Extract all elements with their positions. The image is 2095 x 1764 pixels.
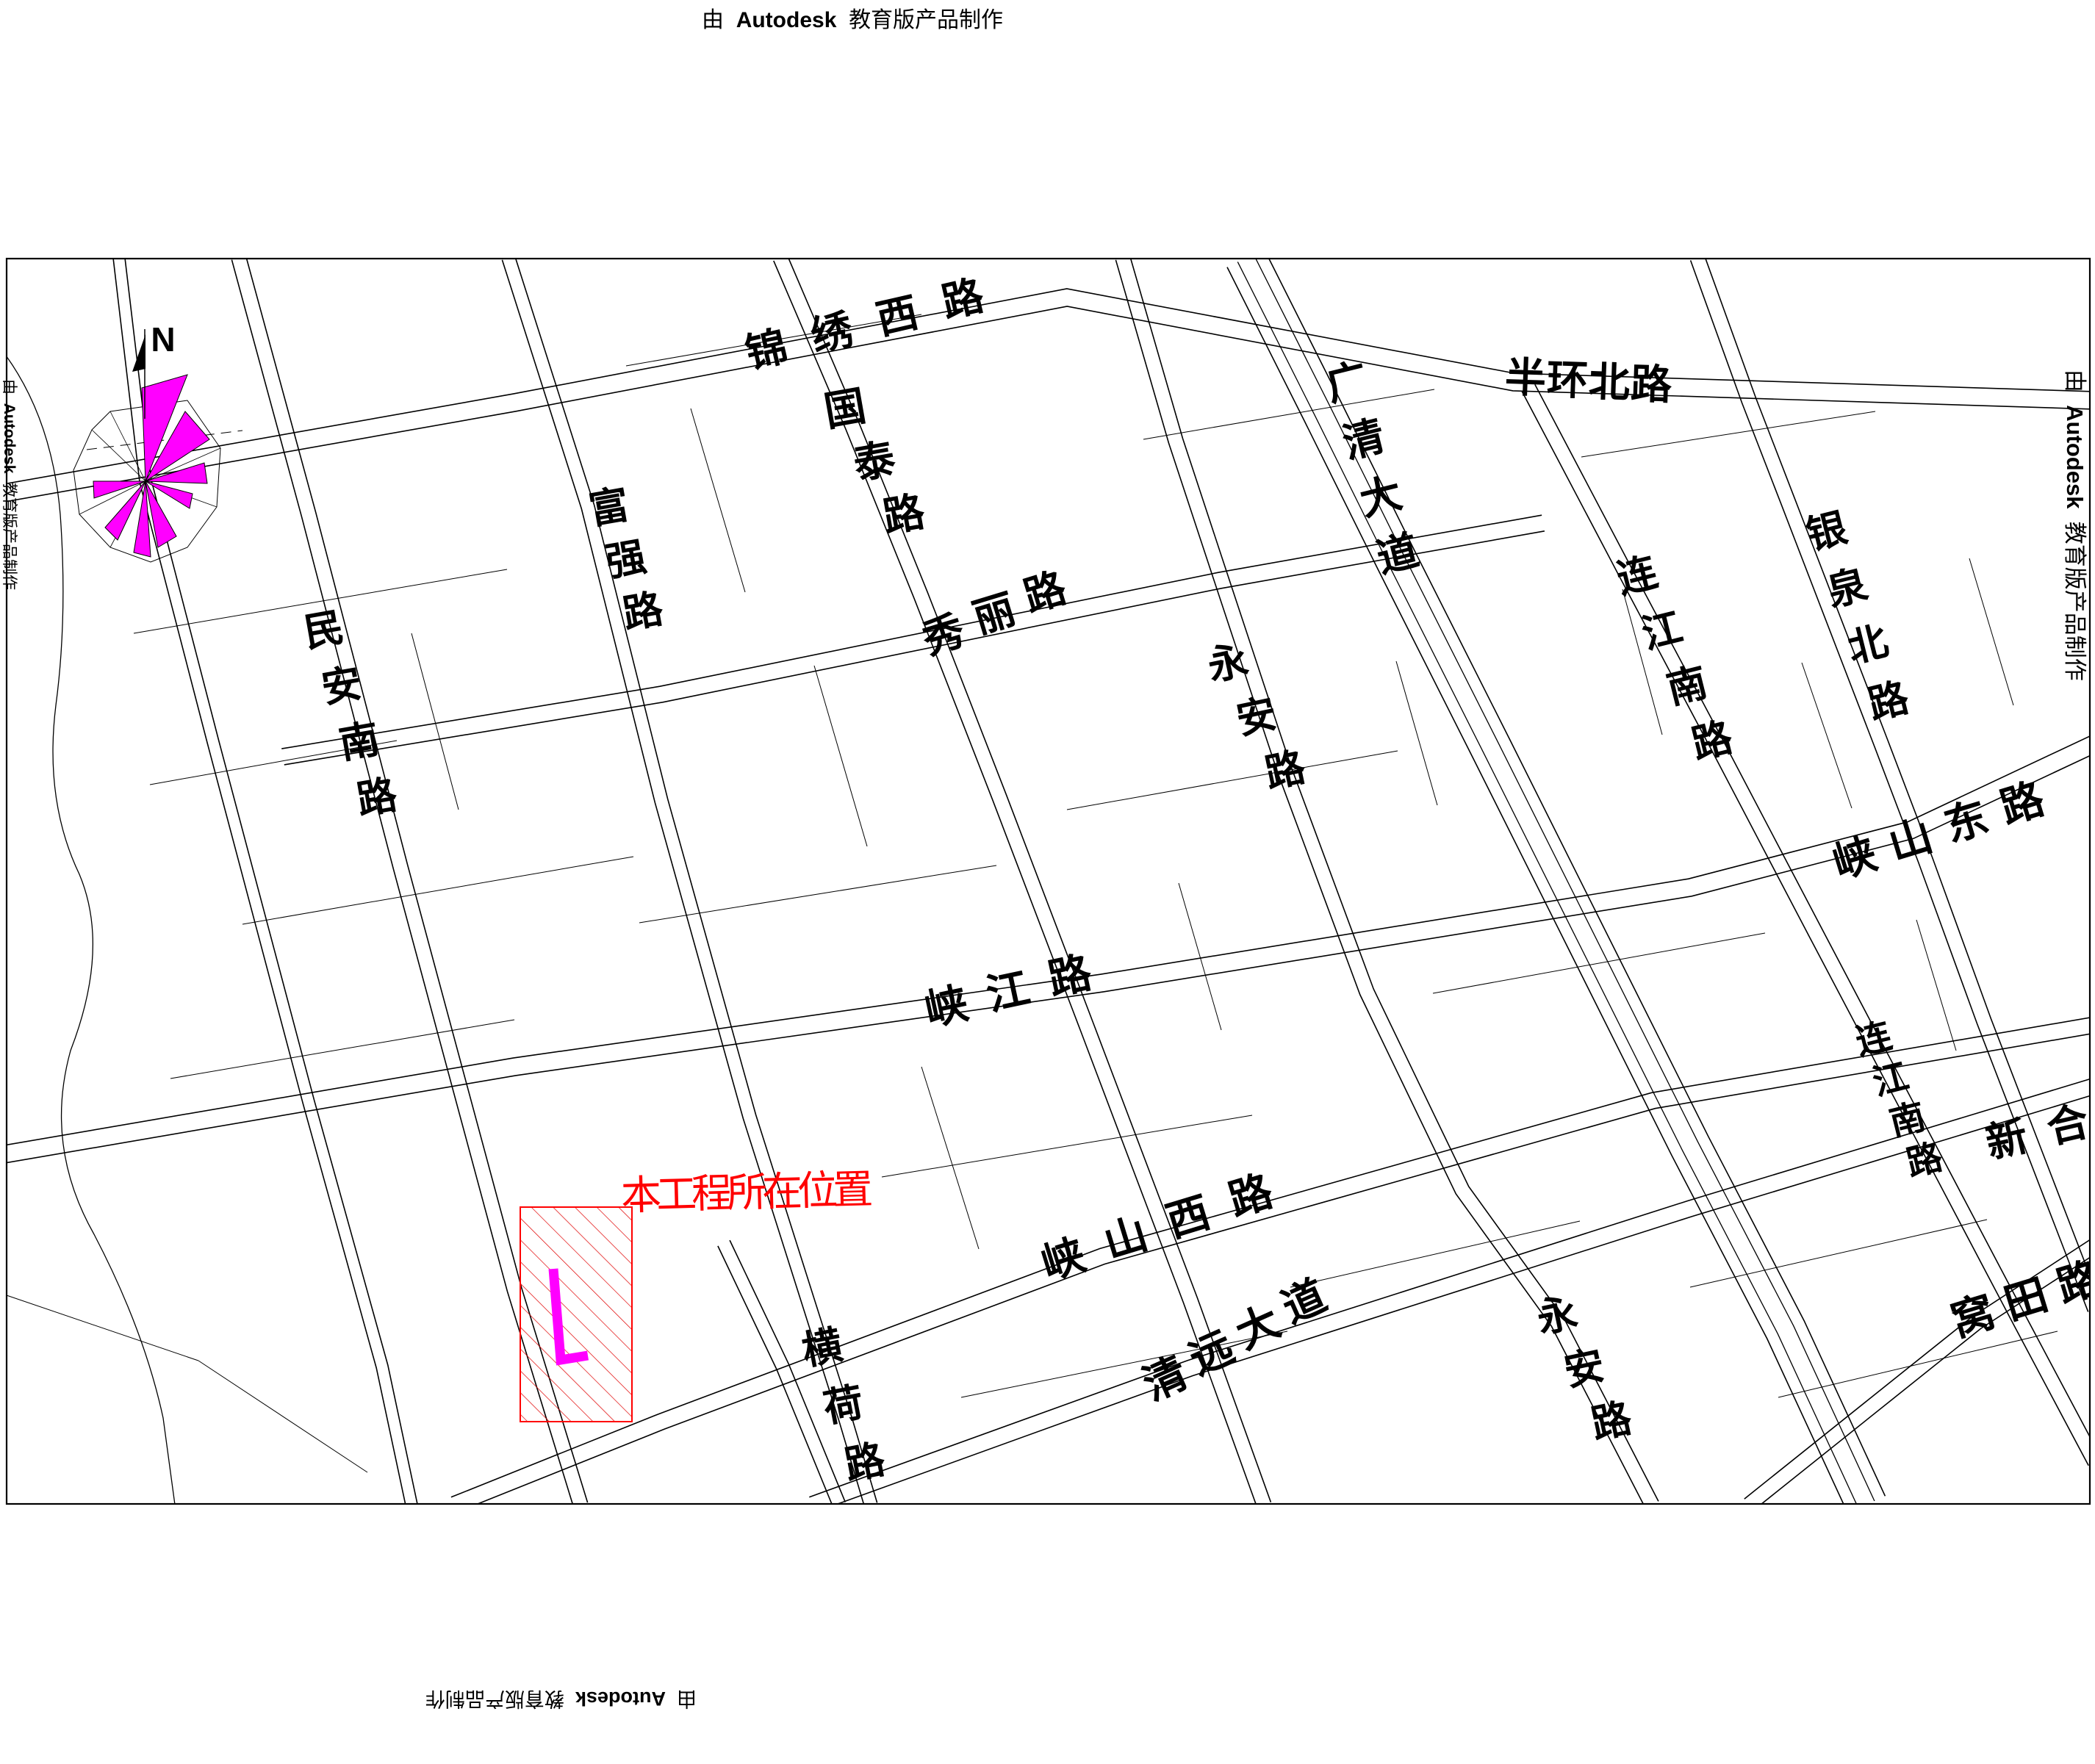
road-label-minan: 民安南路	[301, 605, 401, 823]
svg-text:新: 新	[1982, 1112, 2033, 1167]
road-label-yongan-s: 永安路	[1533, 1290, 1636, 1447]
svg-text:路: 路	[880, 488, 929, 541]
svg-text:路: 路	[841, 1437, 889, 1488]
svg-text:江: 江	[1869, 1056, 1912, 1103]
svg-text:安: 安	[318, 661, 365, 711]
svg-text:永: 永	[1204, 638, 1251, 689]
svg-text:山: 山	[1883, 811, 1938, 869]
road-label-guotai: 国泰路	[821, 382, 929, 541]
road-label-lianjiang-n: 连江南路	[1613, 550, 1738, 767]
svg-text:清: 清	[1338, 412, 1390, 467]
project-site-hatch-rect	[520, 1207, 632, 1422]
road-label-xiajiang: 峡江路	[921, 948, 1096, 1035]
svg-text:路: 路	[1044, 948, 1096, 1004]
svg-text:路: 路	[1630, 361, 1673, 408]
svg-text:南: 南	[1886, 1097, 1929, 1143]
svg-text:路: 路	[1587, 1396, 1636, 1447]
svg-text:横: 横	[799, 1322, 846, 1373]
svg-text:合: 合	[2043, 1098, 2094, 1152]
svg-text:路: 路	[619, 587, 667, 638]
svg-text:路: 路	[1995, 774, 2050, 832]
road-label-yinquan: 银泉北路	[1803, 505, 1914, 727]
svg-text:峡: 峡	[1036, 1231, 1090, 1289]
svg-text:民: 民	[301, 605, 348, 655]
svg-text:北: 北	[1844, 619, 1893, 671]
project-location-label: 本工程所在位置	[620, 1156, 869, 1222]
svg-text:南: 南	[336, 717, 383, 767]
road-label-wotian: 窝田路	[1946, 1253, 2095, 1345]
svg-text:山: 山	[1099, 1209, 1153, 1267]
project-site-area	[520, 1207, 632, 1422]
svg-text:路: 路	[1261, 745, 1309, 796]
svg-text:银: 银	[1803, 505, 1852, 558]
svg-text:强: 强	[603, 535, 650, 585]
svg-text:江: 江	[1638, 605, 1687, 657]
svg-text:路: 路	[938, 272, 989, 326]
svg-text:安: 安	[1560, 1343, 1608, 1394]
road-label-guangqing: 广清大道	[1321, 355, 1423, 582]
svg-text:窝: 窝	[1946, 1287, 2000, 1345]
svg-text:锦: 锦	[741, 323, 792, 377]
svg-text:西: 西	[872, 289, 923, 343]
road-label-xinhe: 新合	[1982, 1098, 2094, 1167]
svg-text:泉: 泉	[1823, 562, 1872, 614]
svg-text:环: 环	[1546, 356, 1589, 404]
cad-location-map-page: 由 Autodesk 教育版产品制作 由 Autodesk 教育版产品制作 由 …	[0, 0, 2095, 1764]
svg-text:远: 远	[1182, 1323, 1240, 1384]
svg-text:路: 路	[1223, 1167, 1279, 1225]
svg-text:丽: 丽	[968, 586, 1021, 642]
road-label-xiuli: 秀丽路	[916, 564, 1072, 663]
svg-text:路: 路	[1864, 675, 1914, 728]
svg-text:路: 路	[1688, 715, 1738, 768]
north-label: N	[151, 320, 175, 359]
svg-text:峡: 峡	[921, 979, 972, 1035]
road-label-henghe: 横荷路	[799, 1322, 889, 1488]
svg-text:江: 江	[982, 964, 1034, 1020]
svg-text:连: 连	[1613, 550, 1662, 602]
svg-text:绣: 绣	[807, 306, 858, 360]
svg-text:东: 东	[1939, 793, 1994, 851]
svg-text:永: 永	[1533, 1290, 1581, 1342]
svg-text:半: 半	[1504, 354, 1547, 402]
svg-text:道: 道	[1275, 1272, 1333, 1333]
svg-text:南: 南	[1663, 660, 1712, 712]
roads-layer	[0, 248, 2095, 1513]
svg-text:连: 连	[1852, 1016, 1895, 1062]
svg-text:国: 国	[821, 382, 869, 435]
svg-text:路: 路	[1902, 1137, 1947, 1184]
location-map-canvas: N 锦绣西路半环北路国泰路广清大道连江南路银泉北路民安南路富强路秀丽路永安路峡江…	[0, 0, 2095, 1764]
svg-text:清: 清	[1136, 1349, 1194, 1410]
svg-text:泰: 泰	[850, 435, 899, 488]
svg-text:路: 路	[353, 773, 401, 824]
road-label-xiashan-w: 峡山西路	[1036, 1167, 1279, 1289]
svg-text:秀: 秀	[916, 607, 970, 663]
svg-text:西: 西	[1161, 1188, 1215, 1246]
svg-text:荷: 荷	[820, 1380, 867, 1430]
svg-text:安: 安	[1232, 691, 1280, 743]
svg-text:富: 富	[586, 483, 633, 533]
svg-text:路: 路	[2052, 1253, 2095, 1311]
road-label-banhuan: 半环北路	[1504, 354, 1673, 408]
svg-text:大: 大	[1355, 469, 1406, 525]
road-label-lianjiang-s: 连江南路	[1852, 1016, 1947, 1184]
map-border	[7, 259, 2090, 1504]
road-label-fuqiang: 富强路	[586, 483, 667, 637]
svg-text:峡: 峡	[1828, 829, 1882, 888]
svg-text:北: 北	[1588, 359, 1631, 406]
road-label-xiashan-e: 峡山东路	[1828, 774, 2050, 888]
